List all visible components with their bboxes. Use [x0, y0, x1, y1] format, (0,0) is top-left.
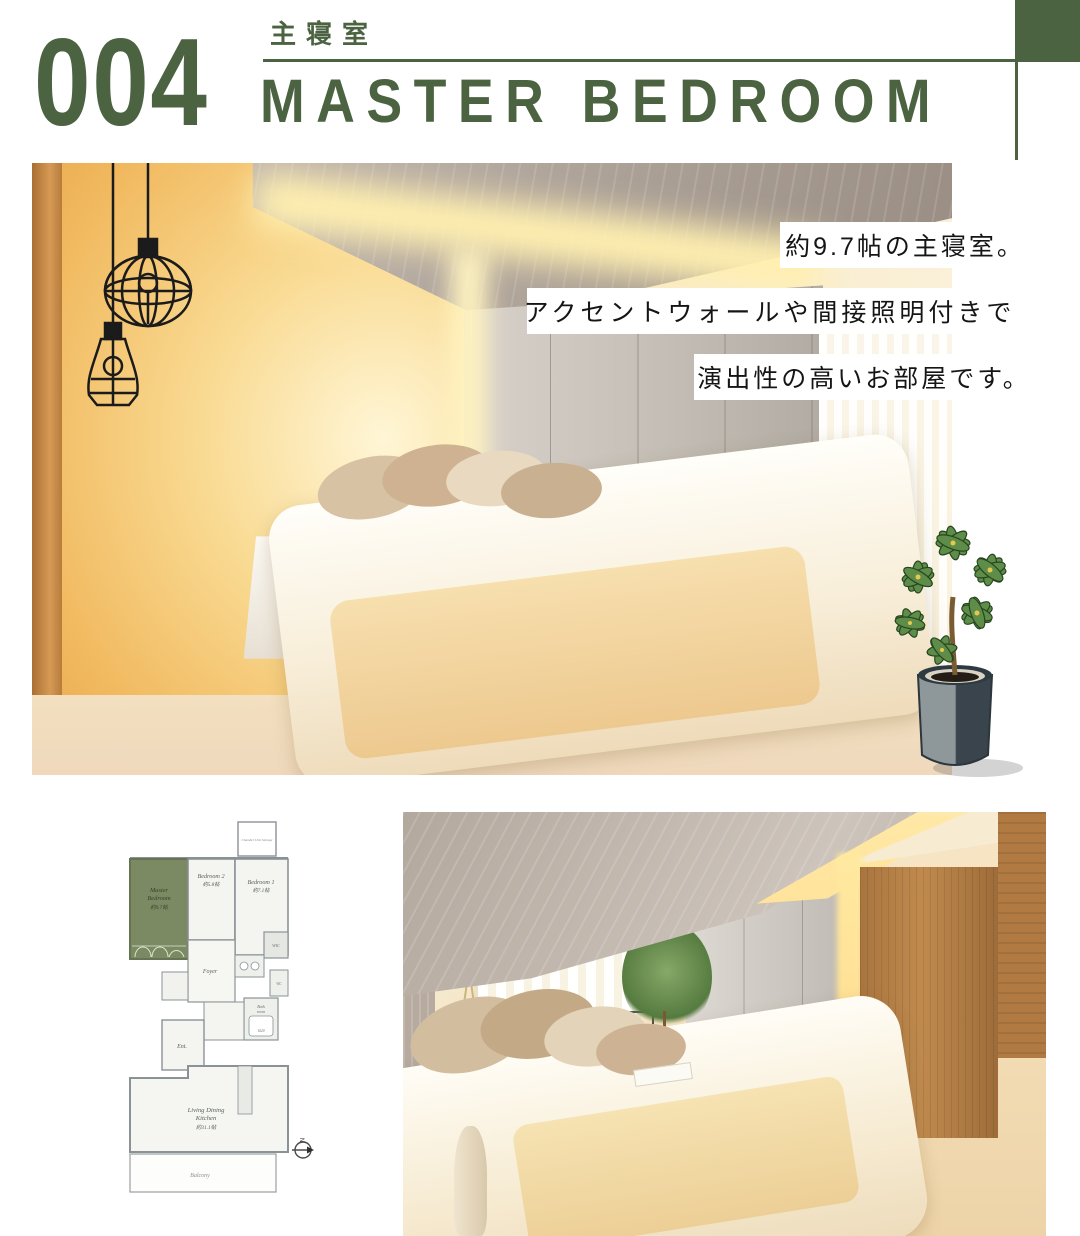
second-bedroom-photo	[403, 812, 1046, 1236]
section-number: 004	[34, 26, 209, 140]
svg-text:約9.7帖: 約9.7帖	[150, 904, 169, 911]
compass-icon: N	[292, 1138, 314, 1158]
floorplan-storage: Chamber Unit Storage	[238, 822, 276, 856]
svg-text:Chamber Unit Storage: Chamber Unit Storage	[242, 838, 273, 842]
floorplan-powder-room	[235, 955, 264, 977]
plant-trunk	[952, 597, 955, 675]
floorplan-entrance: Ent.	[162, 1020, 204, 1070]
header-rule	[263, 59, 1016, 62]
pendant-bell-lamp	[88, 163, 137, 405]
svg-text:WC: WC	[276, 982, 282, 986]
page: 004 主寝室 MASTER BEDROOM	[0, 0, 1080, 1236]
photo-doorframe	[32, 163, 62, 775]
photo-vase	[454, 1126, 486, 1236]
caption-line-2: アクセントウォールや間接照明付きで	[527, 288, 1012, 334]
section-subtitle-jp: 主寝室	[270, 14, 378, 51]
svg-text:Foyer: Foyer	[202, 969, 218, 975]
svg-text:Balcony: Balcony	[190, 1173, 210, 1179]
plant-pot	[918, 675, 992, 765]
photo-right-wall	[998, 812, 1046, 1058]
floorplan-wc: WC	[270, 970, 288, 996]
floorplan-ldk: Living Dining Kitchen 約31.1帖	[130, 1066, 288, 1152]
floorplan-bathroom: Bath room 1620	[244, 998, 278, 1040]
corner-accent-line	[1015, 62, 1018, 160]
corner-accent-square	[1015, 0, 1080, 62]
floorplan-bedroom2: Bedroom 2 約5.8帖	[188, 859, 235, 940]
svg-text:Ent.: Ent.	[176, 1044, 187, 1050]
svg-text:room: room	[257, 1009, 265, 1014]
svg-text:Master: Master	[149, 887, 169, 894]
caption-line-3: 演出性の高いお部屋です。	[694, 354, 1034, 400]
svg-text:約31.1帖: 約31.1帖	[196, 1124, 218, 1131]
svg-text:Bedroom: Bedroom	[147, 895, 171, 902]
plant-foliage	[894, 525, 1007, 666]
svg-text:Bedroom 2: Bedroom 2	[197, 873, 224, 880]
pendant-light-icon	[80, 163, 210, 573]
floorplan: Chamber Unit Storage Master Bedroom 約9.7…	[118, 820, 328, 1215]
svg-text:約5.8帖: 約5.8帖	[203, 881, 221, 888]
floorplan-wic: WIC	[264, 932, 288, 958]
svg-text:約7.1帖: 約7.1帖	[253, 887, 271, 894]
caption-line-1: 約9.7帖の主寝室。	[780, 222, 1030, 268]
svg-text:Bedroom 1: Bedroom 1	[247, 879, 274, 886]
svg-text:WIC: WIC	[272, 943, 280, 948]
floorplan-foyer: Foyer	[188, 940, 235, 1002]
pendant-globe-lamp	[105, 163, 191, 326]
floorplan-master-bedroom: Master Bedroom 約9.7帖	[130, 859, 188, 959]
svg-text:Kitchen: Kitchen	[195, 1115, 217, 1122]
page-title: MASTER BEDROOM	[260, 66, 942, 136]
svg-text:Living Dining: Living Dining	[187, 1107, 226, 1114]
floorplan-balcony: Balcony	[130, 1154, 276, 1192]
svg-text:N: N	[298, 1138, 304, 1142]
potted-plant-icon	[880, 515, 1040, 795]
svg-text:1620: 1620	[257, 1029, 264, 1033]
